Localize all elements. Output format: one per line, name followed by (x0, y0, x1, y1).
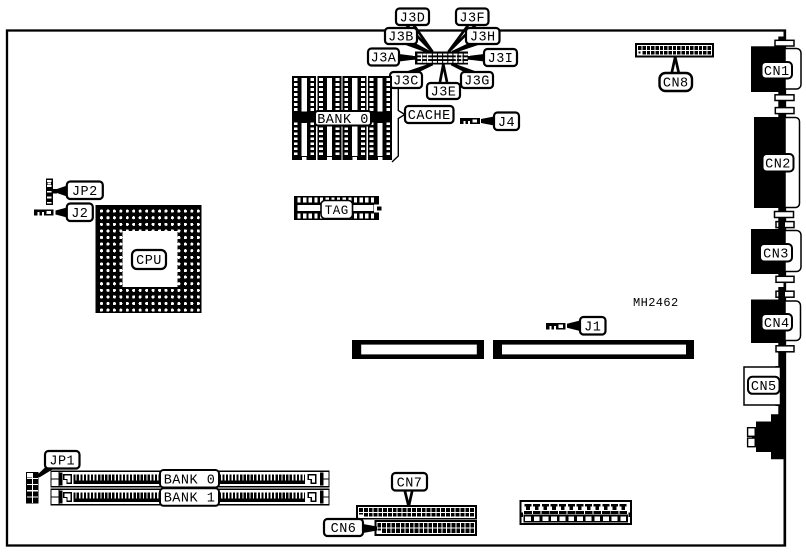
svg-text:CPU: CPU (136, 254, 162, 269)
svg-text:CACHE: CACHE (408, 109, 451, 124)
svg-text:CN3: CN3 (763, 247, 789, 262)
svg-text:J3C: J3C (393, 75, 419, 90)
svg-text:CN1: CN1 (764, 65, 790, 80)
svg-text:MH2462: MH2462 (633, 296, 679, 310)
svg-text:CN5: CN5 (751, 380, 777, 395)
svg-text:J3H: J3H (470, 31, 496, 46)
svg-text:BANK 0: BANK 0 (317, 113, 369, 128)
svg-text:J3F: J3F (459, 11, 485, 26)
svg-text:BANK 1: BANK 1 (164, 492, 216, 507)
svg-text:CN2: CN2 (765, 157, 791, 172)
svg-text:J3E: J3E (431, 86, 457, 101)
svg-text:J3B: J3B (388, 31, 414, 46)
svg-text:J3G: J3G (464, 75, 490, 90)
svg-text:CN7: CN7 (397, 476, 423, 491)
svg-text:J4: J4 (498, 116, 515, 131)
svg-text:J1: J1 (584, 320, 601, 335)
svg-text:CN4: CN4 (764, 317, 790, 332)
svg-text:JP2: JP2 (72, 185, 98, 200)
svg-text:J2: J2 (71, 207, 88, 222)
svg-text:J3A: J3A (371, 52, 397, 67)
svg-text:BANK 0: BANK 0 (164, 473, 216, 488)
svg-text:J3I: J3I (488, 52, 514, 67)
svg-text:J3D: J3D (400, 11, 426, 26)
svg-text:TAG: TAG (325, 204, 349, 218)
svg-text:CN6: CN6 (331, 522, 357, 537)
svg-text:CN8: CN8 (663, 77, 689, 92)
svg-text:JP1: JP1 (49, 454, 75, 469)
